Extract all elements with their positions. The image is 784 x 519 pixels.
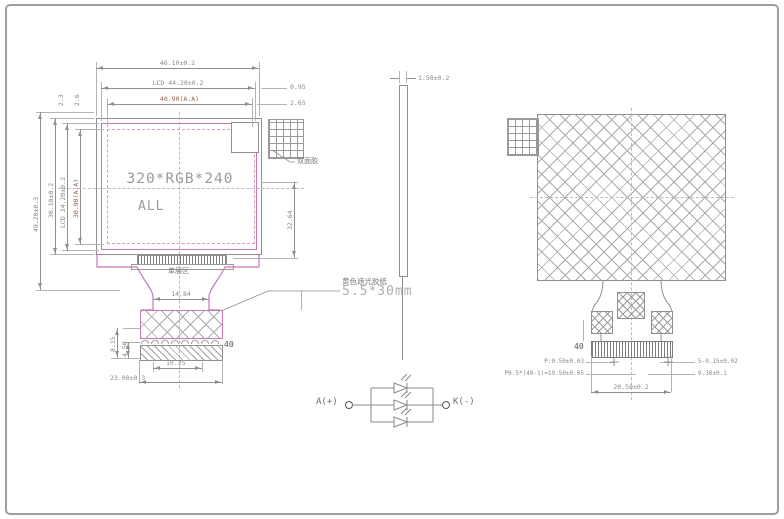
- cross-markers: [610, 357, 673, 366]
- front-tail-outline: [97, 254, 259, 310]
- drawing-sheet: 320*RGB*240 ALL 单层区 40 46.10±0.2 LCD 44.…: [0, 0, 784, 519]
- back-tail-outline: [592, 280, 672, 341]
- line-overlay: [0, 0, 784, 519]
- leader-lines: [221, 150, 340, 311]
- led-symbols: [394, 374, 411, 427]
